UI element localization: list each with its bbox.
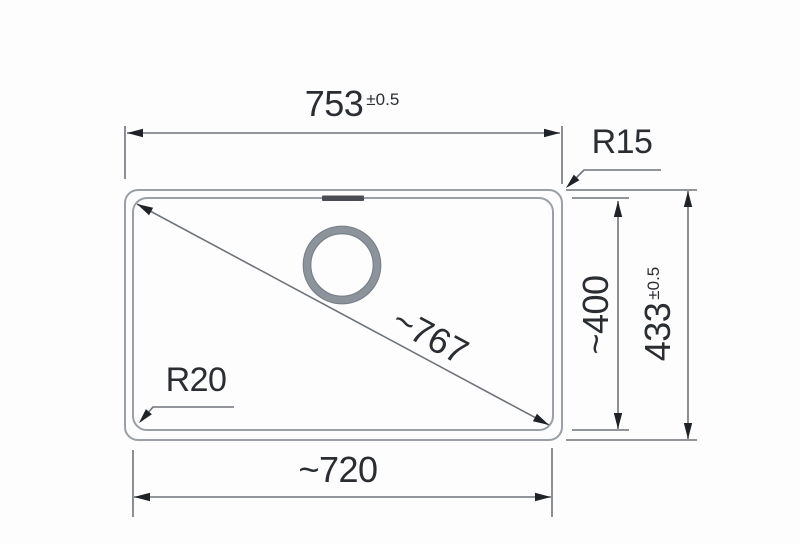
drain-ring [307,230,377,300]
leader-line [141,407,234,421]
drain-ring-outer-edge [303,226,381,304]
dimension-value: 753 [305,83,364,124]
radius-label-bottom-left: R20 [166,363,227,397]
dimension-tolerance: ±0.5 [366,90,399,109]
dimension-value: 433 [637,303,678,362]
arrowhead-bottomright-icon [533,414,549,425]
arrowhead-down-icon [684,423,692,439]
dimension-label-width-inner: ~720 [298,452,377,488]
arrowhead-right-icon [544,129,560,137]
arrowhead-left-icon [127,129,143,137]
drawing-canvas: 753±0.5 R15 ~400 433±0.5 ~767 R20 ~720 [0,0,800,544]
arrowhead-right-icon [535,493,551,501]
arrowhead-up-icon [684,191,692,207]
leader-radius-top-right [566,170,661,188]
arrowhead-down-icon [614,413,622,429]
dimension-label-depth-inner: ~400 [578,275,614,354]
overflow-slot [322,196,364,202]
dimension-label-width-outer: 753±0.5 [305,86,400,122]
leader-radius-bottom-left [139,407,234,423]
drain-ring-inner-edge [311,234,373,296]
arrowhead-up-icon [614,201,622,217]
technical-drawing-svg [0,0,800,544]
radius-label-top-right: R15 [592,125,653,159]
dimension-width-outer [125,126,562,184]
arrowhead-topleft-icon [137,204,153,215]
dimension-label-depth-outer: 433±0.5 [640,267,676,362]
dimension-tolerance: ±0.5 [644,267,663,300]
leader-line [569,170,661,185]
drain-hole [303,226,381,304]
arrowhead-left-icon [134,493,150,501]
